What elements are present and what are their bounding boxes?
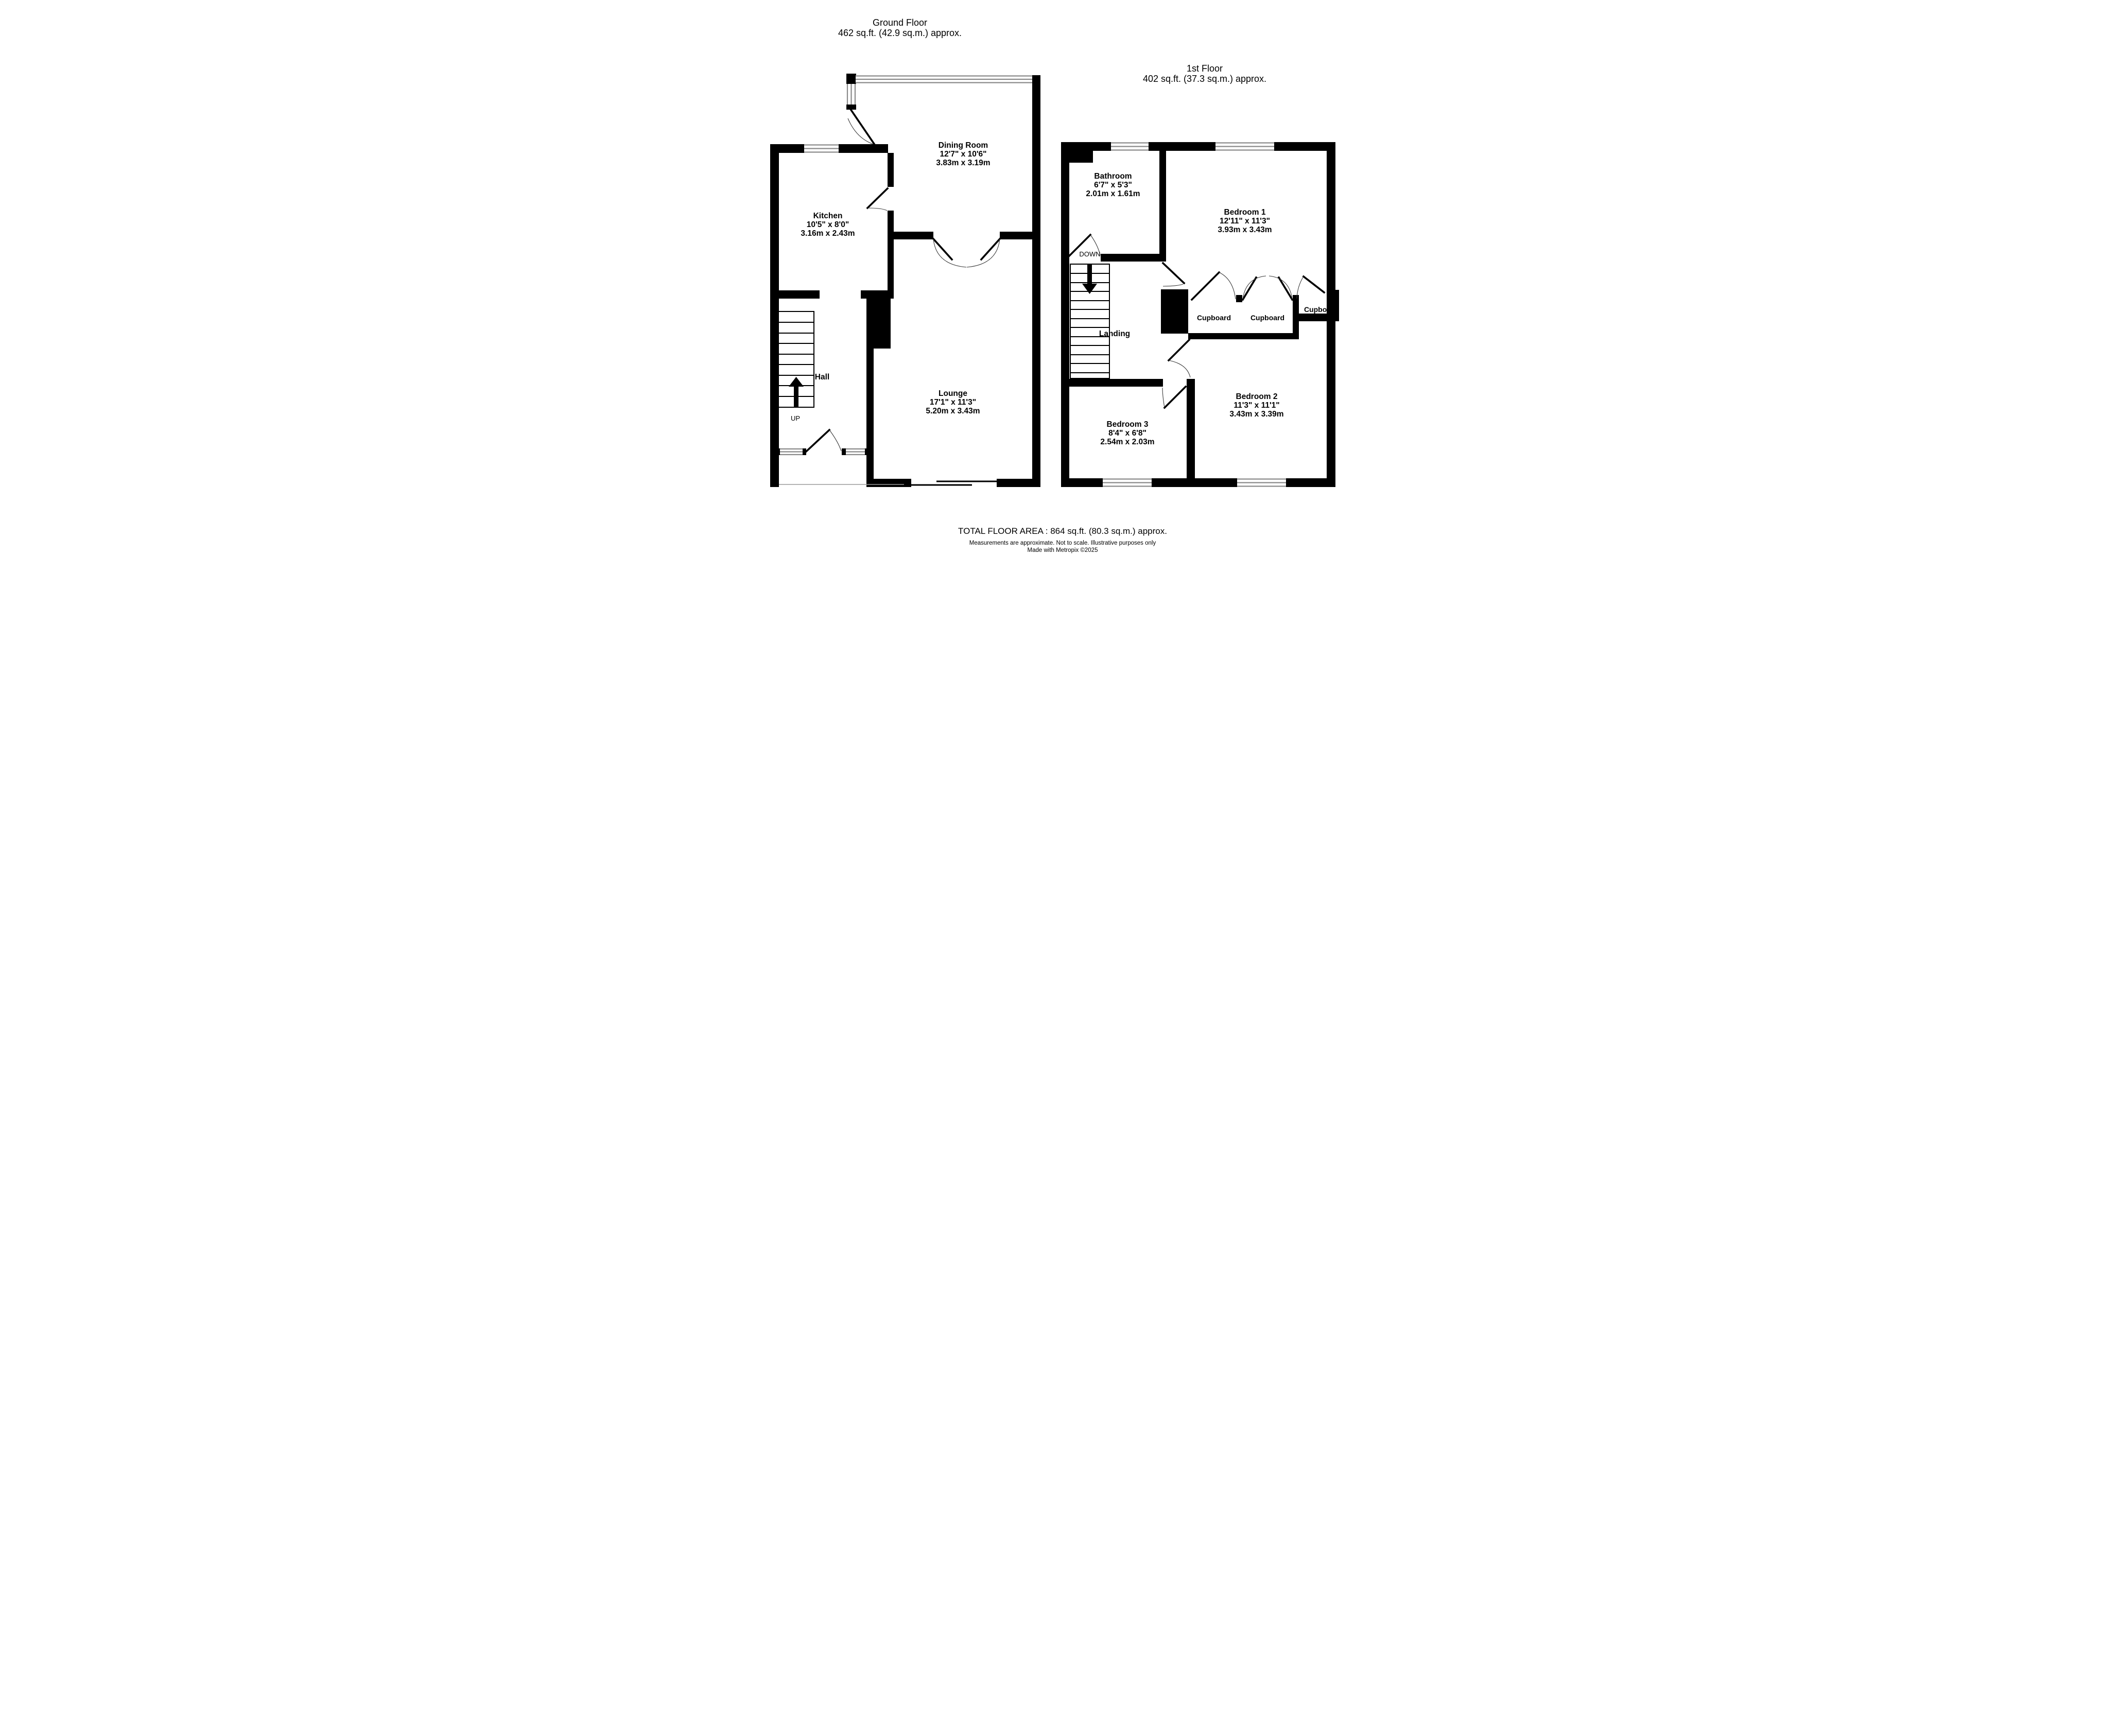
bedroom1-label: Bedroom 1 12'11" x 11'3" 3.93m x 3.43m bbox=[1218, 208, 1272, 234]
bedroom3-window bbox=[1103, 478, 1152, 487]
disclaimer-text: Measurements are approximate. Not to sca… bbox=[969, 540, 1156, 546]
room-size-imperial: 11'3" x 11'1" bbox=[1234, 401, 1279, 410]
wall-segment bbox=[1061, 142, 1069, 487]
first-floor-area: 402 sq.ft. (37.3 sq.m.) approx. bbox=[1143, 74, 1266, 84]
wall-segment bbox=[1161, 289, 1188, 334]
wall-segment bbox=[1000, 232, 1032, 239]
front-door bbox=[806, 430, 841, 452]
kitchen-label: Kitchen 10'5" x 8'0" 3.16m x 2.43m bbox=[801, 212, 855, 238]
cupboard3-door bbox=[1297, 276, 1324, 299]
front-door-sidelight-right bbox=[846, 448, 865, 455]
wall-segment bbox=[865, 448, 874, 455]
bedroom2-label: Bedroom 2 11'3" x 11'1" 3.43m x 3.39m bbox=[1229, 392, 1283, 419]
ground-floor-title: Ground Floor bbox=[873, 18, 927, 28]
wall-segment bbox=[770, 144, 804, 153]
dining-room-side-window bbox=[846, 84, 856, 105]
wall-segment bbox=[1061, 478, 1335, 487]
lounge-label: Lounge 17'1" x 11'3" 5.20m x 3.43m bbox=[926, 389, 980, 415]
patio-sliding-door bbox=[911, 481, 997, 485]
dining-room-door bbox=[848, 109, 875, 145]
dining-room-top-window bbox=[856, 75, 1032, 83]
ground-floor-stairs bbox=[778, 311, 814, 407]
wall-segment bbox=[1069, 379, 1163, 387]
kitchen-window bbox=[804, 144, 839, 153]
first-floor-stairs bbox=[1070, 264, 1109, 378]
wall-segment bbox=[1187, 379, 1195, 487]
wall-segment bbox=[861, 290, 894, 299]
wall-segment bbox=[1061, 142, 1335, 151]
stairs-up-label: UP bbox=[791, 414, 800, 422]
dining-room-label: Dining Room 12'7" x 10'6" 3.83m x 3.19m bbox=[936, 141, 990, 167]
bedroom2-window bbox=[1237, 478, 1286, 487]
room-name: Bathroom bbox=[1094, 172, 1132, 181]
footer: TOTAL FLOOR AREA : 864 sq.ft. (80.3 sq.m… bbox=[958, 526, 1167, 553]
down-arrow-icon bbox=[1082, 264, 1097, 294]
wall-segment bbox=[997, 479, 1040, 487]
hall-label: Hall bbox=[815, 373, 829, 381]
wall-segment bbox=[867, 479, 911, 487]
wall-segment bbox=[846, 74, 856, 84]
first-floor-title: 1st Floor bbox=[1187, 63, 1223, 74]
up-arrow-icon bbox=[789, 377, 804, 407]
ground-floor-windows bbox=[780, 75, 1032, 455]
room-size-imperial: 8'4" x 6'8" bbox=[1108, 429, 1146, 438]
wall-segment bbox=[842, 448, 846, 455]
lounge-double-doors bbox=[933, 239, 1000, 267]
room-size-metric: 2.54m x 2.03m bbox=[1100, 438, 1154, 446]
wall-segment bbox=[1236, 295, 1242, 302]
room-size-metric: 2.01m x 1.61m bbox=[1086, 189, 1140, 198]
landing-label: Landing bbox=[1099, 329, 1130, 338]
room-size-imperial: 17'1" x 11'3" bbox=[930, 398, 976, 407]
wall-segment bbox=[1032, 75, 1040, 487]
room-name: Bedroom 1 bbox=[1224, 208, 1266, 217]
wall-segment bbox=[866, 299, 874, 487]
room-name: Bedroom 3 bbox=[1107, 420, 1149, 429]
bedroom3-door bbox=[1162, 387, 1186, 408]
ground-floor-plan bbox=[770, 74, 1040, 487]
cupboard2-double-doors bbox=[1243, 276, 1292, 300]
wall-segment bbox=[839, 144, 888, 153]
room-name: Bedroom 2 bbox=[1236, 392, 1278, 401]
wall-segment bbox=[888, 153, 894, 187]
room-size-metric: 3.83m x 3.19m bbox=[936, 159, 990, 167]
room-name: Kitchen bbox=[813, 212, 843, 220]
bedroom3-label: Bedroom 3 8'4" x 6'8" 2.54m x 2.03m bbox=[1100, 420, 1154, 446]
bedroom1-door bbox=[1163, 263, 1184, 286]
chimney-breast bbox=[1066, 151, 1093, 163]
cupboard2-label: Cupboard bbox=[1250, 314, 1284, 322]
wall-segment bbox=[770, 448, 780, 455]
wall-segment bbox=[1101, 254, 1166, 262]
wall-segment bbox=[888, 211, 894, 299]
first-floor-right-wall-overlay bbox=[1327, 142, 1339, 487]
room-size-metric: 3.43m x 3.39m bbox=[1229, 410, 1283, 419]
room-name: Dining Room bbox=[939, 141, 988, 150]
kitchen-door bbox=[867, 188, 888, 211]
wall-segment bbox=[1293, 295, 1299, 335]
wall-segment bbox=[770, 290, 820, 299]
wall-segment bbox=[1188, 333, 1299, 339]
room-size-imperial: 12'7" x 10'6" bbox=[940, 150, 986, 159]
room-size-imperial: 12'11" x 11'3" bbox=[1220, 217, 1270, 225]
bathroom-label: Bathroom 6'7" x 5'3" 2.01m x 1.61m bbox=[1086, 172, 1140, 198]
bedroom1-window bbox=[1215, 142, 1274, 151]
room-size-metric: 5.20m x 3.43m bbox=[926, 407, 980, 415]
floor-plan-canvas: Ground Floor 462 sq.ft. (42.9 sq.m.) app… bbox=[701, 0, 1401, 579]
cupboard1-label: Cupboard bbox=[1197, 314, 1231, 322]
front-door-sidelight-left bbox=[780, 448, 803, 455]
room-size-metric: 3.93m x 3.43m bbox=[1218, 225, 1272, 234]
credit-text: Made with Metropix ©2025 bbox=[1028, 547, 1098, 553]
room-name: Lounge bbox=[939, 389, 967, 398]
floorplan-page: Ground Floor 462 sq.ft. (42.9 sq.m.) app… bbox=[701, 0, 1401, 579]
total-floor-area-text: TOTAL FLOOR AREA : 864 sq.ft. (80.3 sq.m… bbox=[958, 526, 1167, 536]
wall-segment bbox=[1333, 290, 1339, 321]
room-size-metric: 3.16m x 2.43m bbox=[801, 229, 855, 238]
room-size-imperial: 10'5" x 8'0" bbox=[807, 220, 849, 229]
cupboard1-door bbox=[1192, 272, 1236, 300]
bathroom-window bbox=[1111, 142, 1149, 151]
room-size-imperial: 6'7" x 5'3" bbox=[1094, 181, 1132, 189]
wall-segment bbox=[894, 232, 933, 239]
ground-floor-walls bbox=[770, 74, 1040, 487]
stairs-down-label: DOWN bbox=[1079, 250, 1100, 258]
ground-floor-area: 462 sq.ft. (42.9 sq.m.) approx. bbox=[838, 28, 962, 38]
wall-segment bbox=[1159, 151, 1166, 262]
bedroom2-door bbox=[1169, 340, 1190, 377]
